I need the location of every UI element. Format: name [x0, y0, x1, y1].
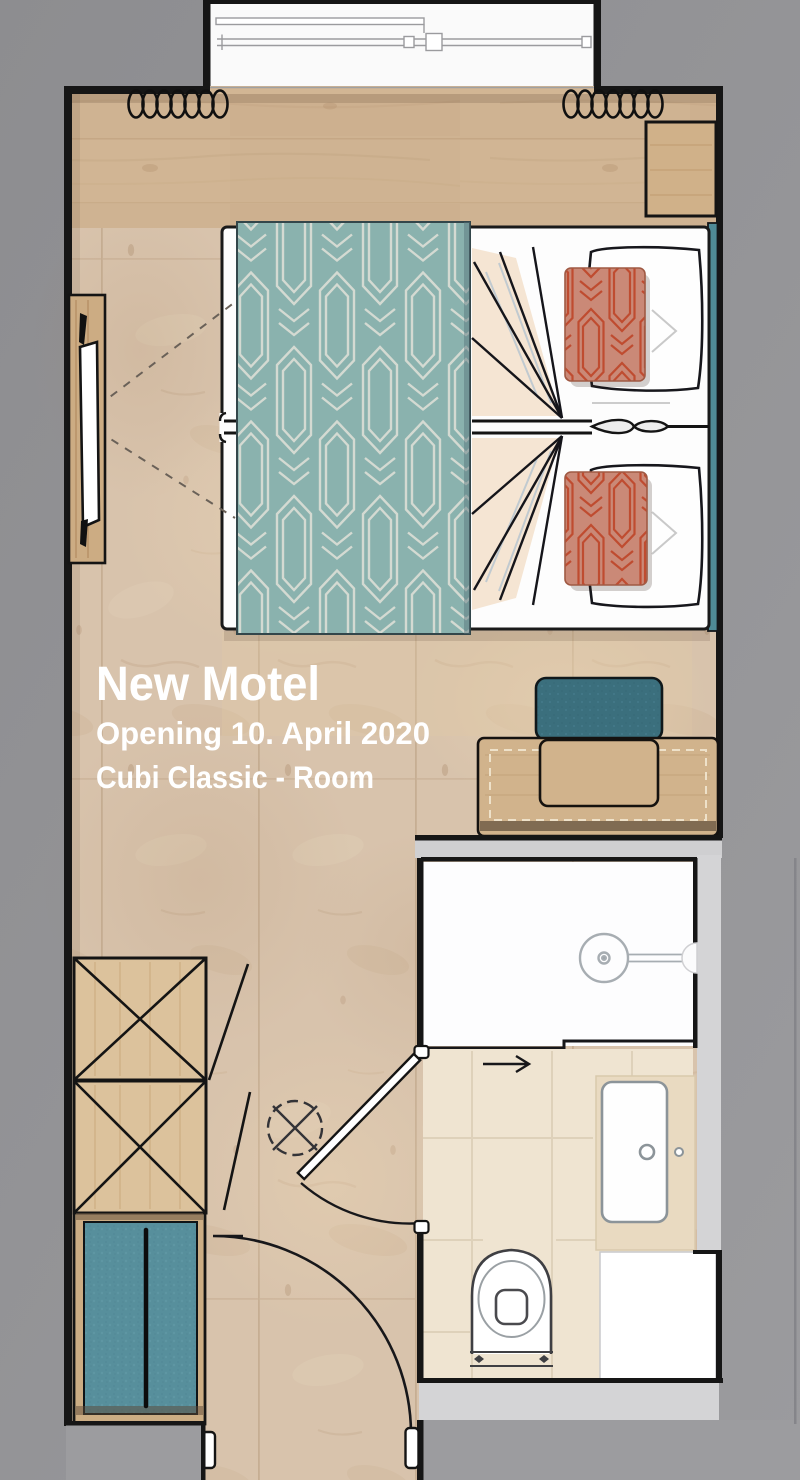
svg-text:Opening 10. April 2020: Opening 10. April 2020	[96, 715, 430, 751]
svg-text:New Motel: New Motel	[96, 658, 320, 711]
svg-text:Cubi Classic - Room: Cubi Classic - Room	[96, 759, 374, 795]
